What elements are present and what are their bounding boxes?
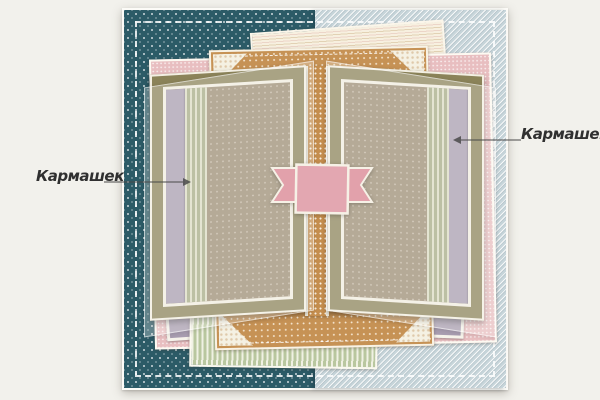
right-pocket-label: Кармашек [521,125,600,143]
arrow-left-icon [452,133,522,147]
ribbon-banner-icon [266,160,378,218]
scrapbook-sketch-page: Кармашек Кармашек [0,0,600,400]
arrow-right-icon [102,175,192,189]
